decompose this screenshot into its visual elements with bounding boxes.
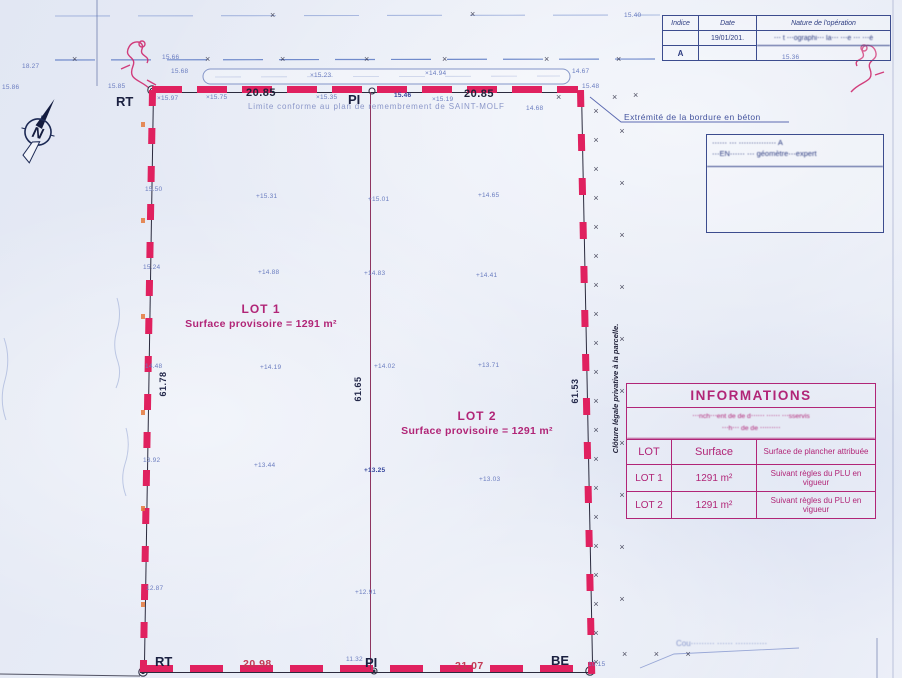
info-header-lot: LOT bbox=[627, 439, 672, 464]
elevation-label: +15.01 bbox=[368, 196, 389, 203]
fence-x-mark: × bbox=[556, 93, 561, 102]
lot1-label: LOT 1 Surface provisoire = 1291 m² bbox=[158, 302, 364, 330]
elevation-label: 15.66 bbox=[162, 54, 179, 61]
revision-cell bbox=[663, 31, 699, 46]
elevation-label: +14.65 bbox=[478, 192, 499, 199]
lot1-surface: Surface provisoire = 1291 m² bbox=[158, 318, 364, 330]
elevation-label: +14.83 bbox=[364, 270, 385, 277]
dim-middle: 61.65 bbox=[353, 367, 363, 411]
elevation-label: +14.88 bbox=[258, 269, 279, 276]
survey-point-markers bbox=[139, 86, 594, 676]
elevation-label: 15.50 bbox=[145, 186, 162, 193]
fence-x-mark: × bbox=[72, 55, 77, 64]
traffic-island-outline bbox=[203, 69, 570, 84]
elevation-label: 15.86 bbox=[2, 84, 19, 91]
bottom-right-note: Cou⋯⋯⋯ ⋯⋯ ⋯⋯⋯⋯ bbox=[676, 639, 767, 648]
info-cell-lot1: LOT 1 bbox=[627, 464, 672, 491]
informations-note-line2: ⋯h⋯ de de ⋯⋯⋯ bbox=[722, 423, 781, 435]
elevation-label: 18.27 bbox=[22, 63, 39, 70]
point-label-pi-bottom: PI bbox=[365, 655, 377, 670]
elevation-label: +13.03 bbox=[479, 476, 500, 483]
cartouche-line2: ⋯EN⋯⋯ ⋯ géomètre⋯expert bbox=[712, 148, 878, 159]
elevation-label: 15.85 bbox=[108, 83, 125, 90]
elevation-label: +13.25 bbox=[364, 467, 385, 474]
elevation-label: 11.32 bbox=[346, 656, 363, 663]
fence-x-mark: × bbox=[544, 55, 549, 64]
elevation-label: 14.68 bbox=[526, 105, 543, 112]
fence-x-mark: × bbox=[616, 55, 621, 64]
bottom-left-boundary-continuation bbox=[0, 674, 140, 676]
elevation-label: +14.02 bbox=[374, 363, 395, 370]
fence-x-row-bottom: × × × bbox=[622, 650, 703, 659]
north-arrow-icon: N bbox=[12, 94, 66, 168]
elevation-label: ×15.23 bbox=[310, 72, 331, 79]
elevation-label: ×15.19 bbox=[432, 96, 453, 103]
cloture-note: Clôture légale privative à la parcelle. bbox=[611, 301, 620, 476]
fence-x-column-inner: ×××××××××××××××××××× bbox=[591, 106, 600, 672]
fence-x-mark: × bbox=[633, 91, 638, 100]
limite-note: Limite conforme au plan de remembrement … bbox=[248, 102, 558, 111]
fence-x-mark: × bbox=[470, 10, 475, 19]
revision-cell bbox=[757, 46, 890, 60]
point-label-rt-bottom: RT bbox=[155, 654, 172, 669]
elevation-label: 15.24 bbox=[143, 264, 160, 271]
revision-header-date: Date bbox=[699, 16, 757, 31]
elevation-label: +14.19 bbox=[260, 364, 281, 371]
elevation-label: +13.44 bbox=[254, 462, 275, 469]
point-label-rt-top: RT bbox=[116, 94, 133, 109]
point-label-pi-top: PI bbox=[348, 92, 360, 107]
lot1-name: LOT 1 bbox=[158, 302, 364, 316]
elevation-label: 14.48 bbox=[145, 363, 162, 370]
elevation-label: 15.40 bbox=[624, 12, 641, 19]
dim-bottom-right: 21.07 bbox=[455, 660, 484, 672]
info-cell-lot2: LOT 2 bbox=[627, 491, 672, 518]
elevation-label: 15.46 bbox=[394, 92, 411, 99]
revision-cell-nature: ⋯ t ⋯ographi⋯ la⋯ ⋯e ⋯ ⋯é bbox=[757, 31, 890, 46]
elevation-label: +15.31 bbox=[256, 193, 277, 200]
info-cell-lot1-plancher: Suivant règles du PLU en vigueur bbox=[757, 464, 875, 491]
elevation-label: ×15.75 bbox=[206, 94, 227, 101]
revision-header-indice: Indice bbox=[663, 16, 699, 31]
elevation-label: +13.71 bbox=[478, 362, 499, 369]
elevation-label: 12.87 bbox=[146, 585, 163, 592]
extremite-note: Extrémité de la bordure en béton bbox=[624, 112, 761, 122]
elevation-label: 13.92 bbox=[143, 457, 160, 464]
lot2-name: LOT 2 bbox=[374, 409, 580, 423]
fence-x-mark: × bbox=[612, 93, 617, 102]
point-label-be-bottom: BE bbox=[551, 653, 569, 668]
revision-cell bbox=[699, 46, 757, 60]
info-cell-lot1-surface: 1291 m² bbox=[672, 464, 757, 491]
survey-flourish-topleft bbox=[121, 41, 156, 90]
dim-right-side: 61.53 bbox=[570, 369, 580, 413]
lot-divider-line bbox=[370, 92, 371, 670]
fence-x-mark: × bbox=[205, 55, 210, 64]
surveyor-cartouche: ⋯⋯ ⋯ ⋯⋯⋯⋯⋯ A ⋯EN⋯⋯ ⋯ géomètre⋯expert bbox=[706, 134, 884, 233]
elevation-label: +12.91 bbox=[355, 589, 376, 596]
revision-header-nature: Nature de l'opération bbox=[757, 16, 890, 31]
informations-table: INFORMATIONS ⋯nch⋯ent de de d⋯⋯ ⋯⋯ ⋯sser… bbox=[626, 383, 876, 519]
informations-note-line1: ⋯nch⋯ent de de d⋯⋯ ⋯⋯ ⋯sservis bbox=[692, 411, 809, 423]
elevation-label: 15.48 bbox=[582, 83, 599, 90]
elevation-label: 15.36 bbox=[782, 54, 799, 61]
elevation-label: ×14.94 bbox=[425, 70, 446, 77]
elevation-label: 10.15 bbox=[588, 661, 605, 668]
info-header-surface: Surface bbox=[672, 439, 757, 464]
dim-bottom-left: 20.98 bbox=[243, 658, 272, 670]
revision-cell-indice-a: A bbox=[663, 46, 699, 60]
boundary-left-ticks bbox=[141, 122, 145, 642]
lot2-label: LOT 2 Surface provisoire = 1291 m² bbox=[374, 409, 580, 437]
dim-top-left: 20.85 bbox=[246, 87, 276, 99]
elevation-label: 14.67 bbox=[572, 68, 589, 75]
informations-title: INFORMATIONS bbox=[627, 384, 875, 408]
revision-table: Indice Date Nature de l'opération 19/01/… bbox=[662, 15, 891, 61]
north-letter: N bbox=[30, 124, 46, 143]
fence-x-mark: × bbox=[364, 55, 369, 64]
info-cell-lot2-plancher: Suivant règles du PLU en vigueur bbox=[757, 491, 875, 518]
dim-top-right: 20.85 bbox=[464, 88, 494, 100]
elevation-label: 15.68 bbox=[171, 68, 188, 75]
cartouche-line1: ⋯⋯ ⋯ ⋯⋯⋯⋯⋯ A bbox=[712, 137, 878, 148]
fence-x-mark: × bbox=[270, 11, 275, 20]
handwritten-margin-notes bbox=[2, 298, 128, 496]
elevation-label: ×15.97 bbox=[157, 95, 178, 102]
elevation-label: ×15.35 bbox=[316, 94, 337, 101]
informations-note: ⋯nch⋯ent de de d⋯⋯ ⋯⋯ ⋯sservis ⋯h⋯ de de… bbox=[627, 408, 875, 439]
road-fence-lines bbox=[55, 15, 660, 60]
survey-plan-sheet: N ×××××××××××××××××××× ×××××××××× × × × … bbox=[0, 0, 902, 678]
lot2-surface: Surface provisoire = 1291 m² bbox=[374, 425, 580, 437]
info-header-plancher: Surface de plancher attribuée bbox=[757, 439, 875, 464]
info-cell-lot2-surface: 1291 m² bbox=[672, 491, 757, 518]
fence-x-mark: × bbox=[442, 55, 447, 64]
fence-x-mark: × bbox=[280, 55, 285, 64]
revision-cell-date: 19/01/201. bbox=[699, 31, 757, 46]
elevation-label: +14.41 bbox=[476, 272, 497, 279]
